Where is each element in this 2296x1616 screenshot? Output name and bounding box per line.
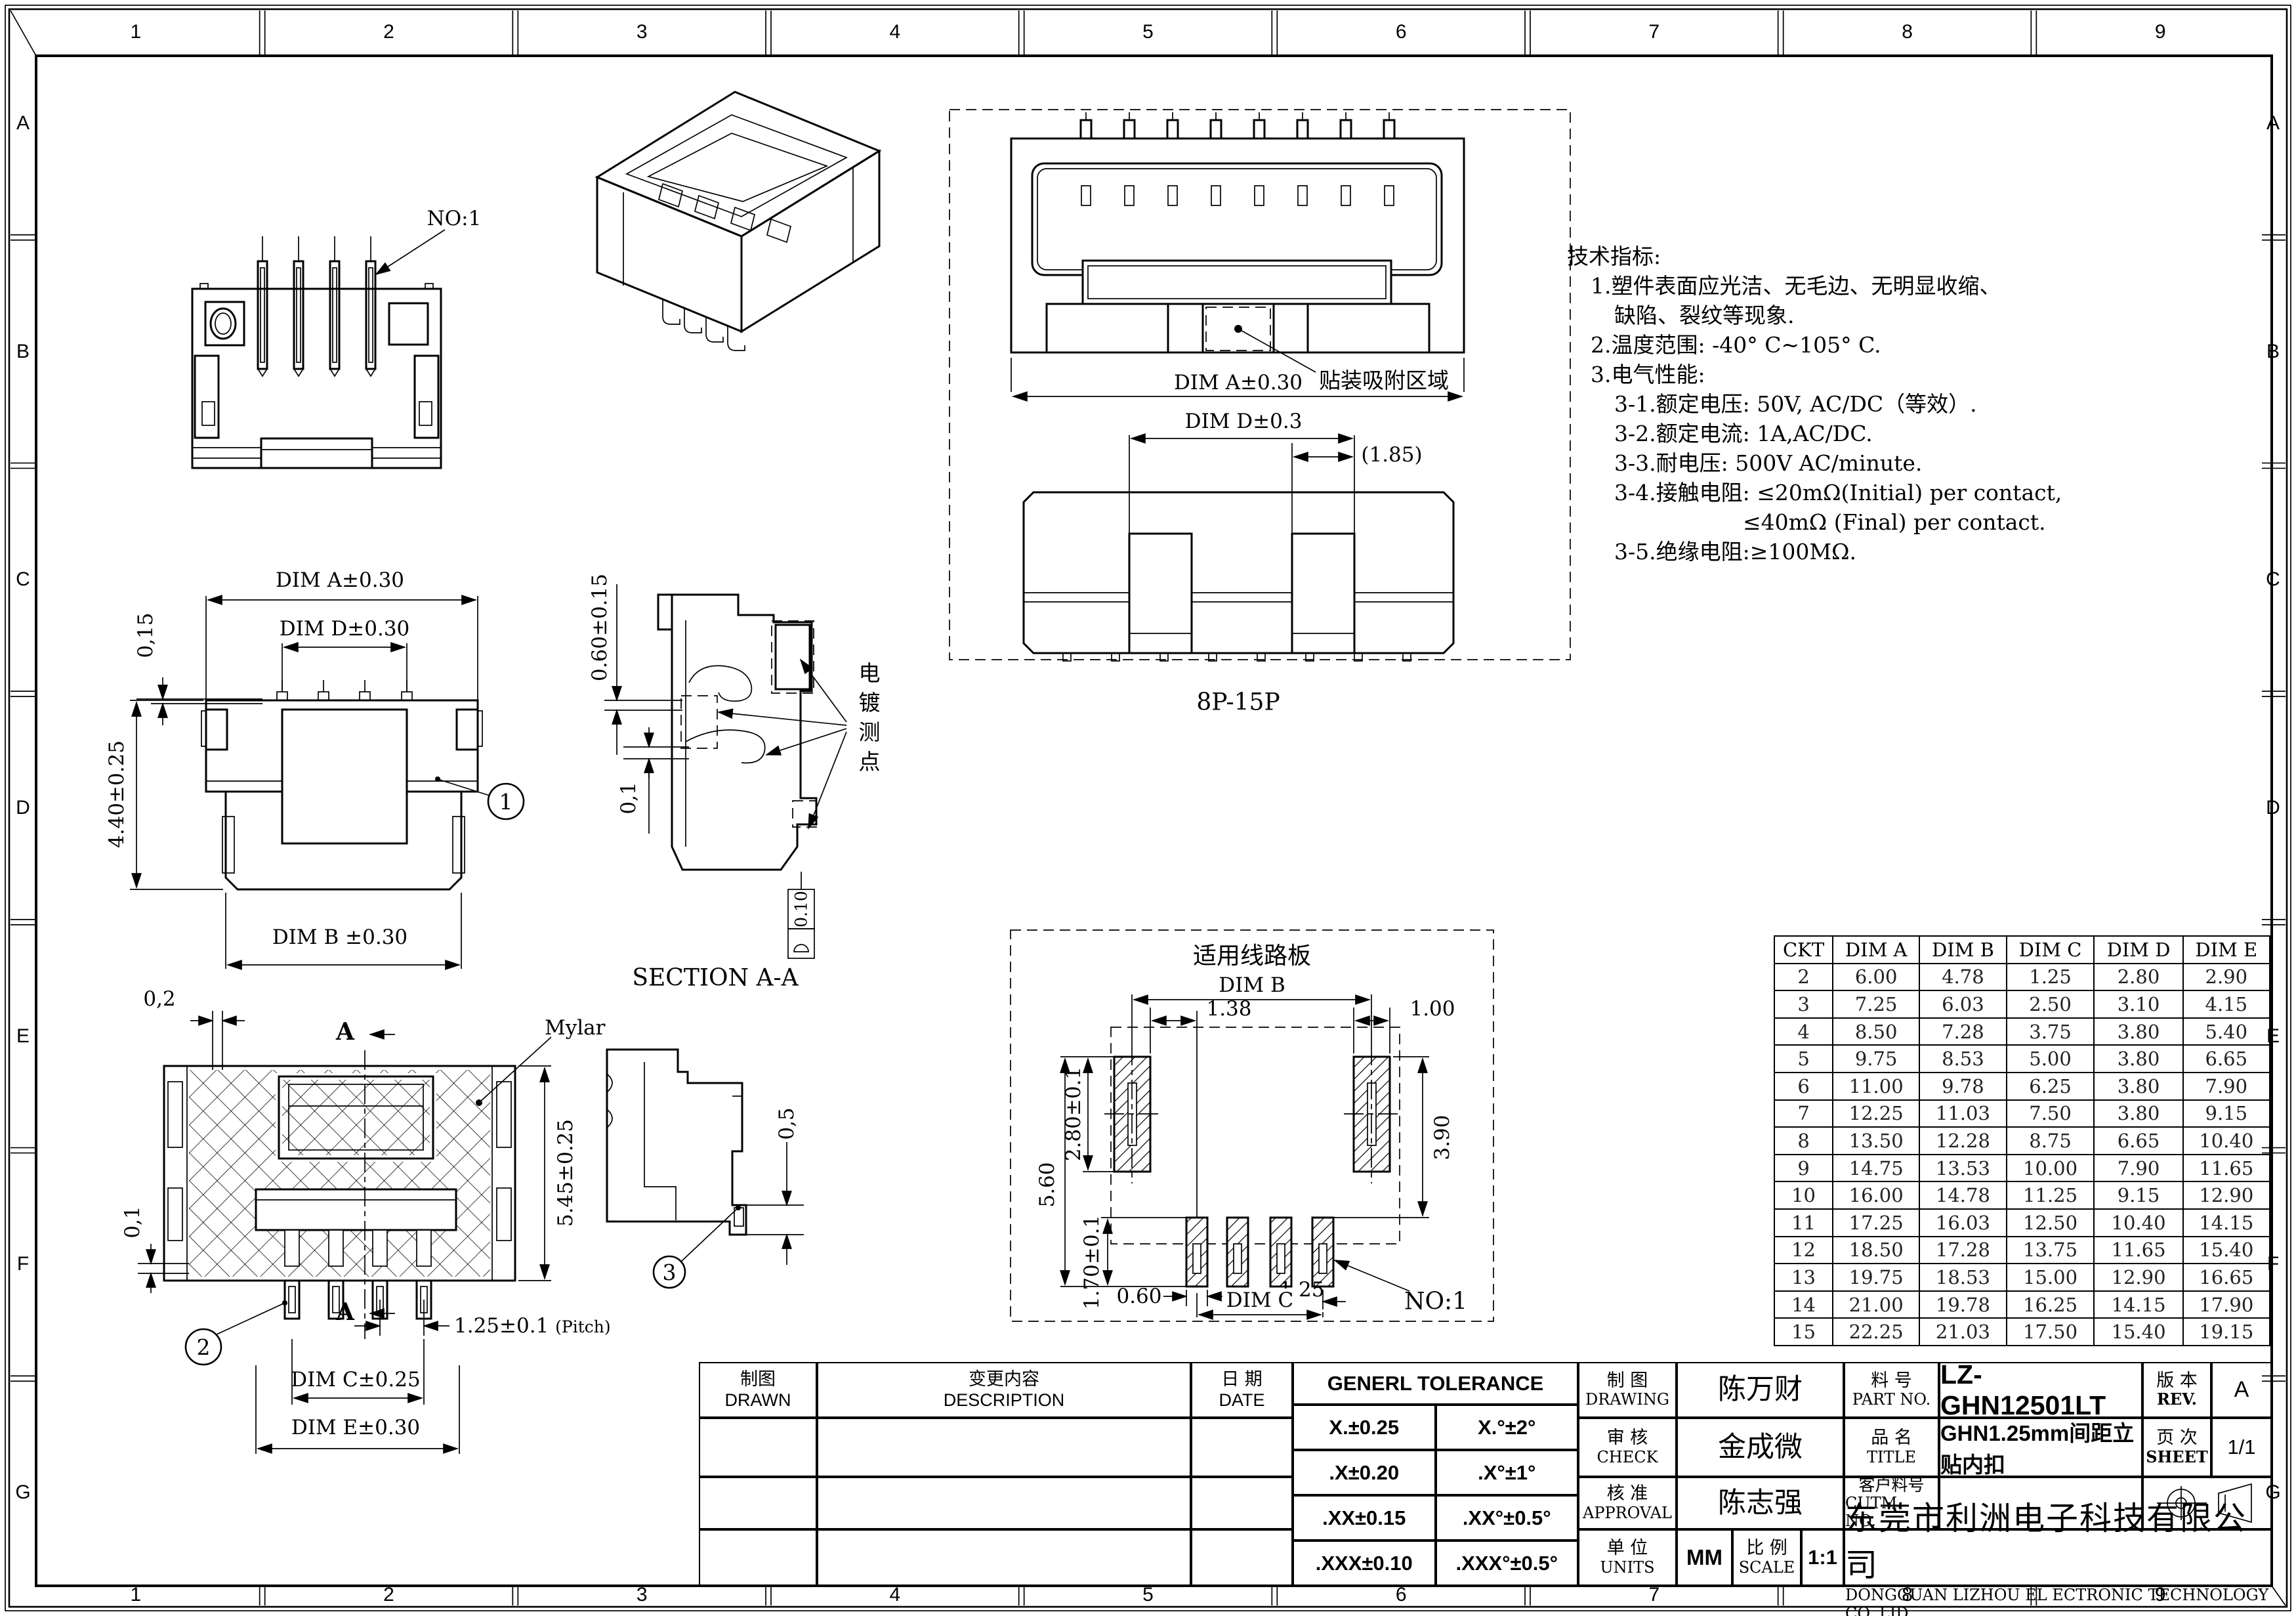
technical-note-line: 2.温度范围: -40° C~105° C.	[1567, 330, 2112, 360]
drawn-header-en: DRAWN	[725, 1390, 791, 1410]
table-cell: 12.50	[2007, 1209, 2095, 1237]
table-cell: 14.15	[2183, 1209, 2270, 1237]
drawing-label: 制 图 DRAWING	[1578, 1362, 1677, 1418]
pcb-dim-b-label: DIM B	[1219, 973, 1285, 997]
table-cell: 4.78	[1919, 964, 2007, 991]
table-cell: 13.75	[2007, 1237, 2095, 1264]
table-cell: 10	[1774, 1181, 1833, 1209]
table-cell: 12.90	[2183, 1181, 2270, 1209]
description-header: 变更内容 DESCRIPTION	[817, 1362, 1191, 1418]
table-cell: 7.25	[1833, 990, 1919, 1018]
dim-d-label: DIM D±0.30	[280, 617, 410, 641]
table-cell: 19.15	[2183, 1318, 2270, 1346]
scale-value: 1:1	[1801, 1529, 1844, 1586]
zone-letter: C	[10, 465, 35, 694]
ckt-dimension-table: CKTDIM ADIM BDIM CDIM DDIM E 26.004.781.…	[1774, 935, 2270, 1346]
product-title-label-en: TITLE	[1867, 1449, 1916, 1466]
table-header-cell: DIM A	[1833, 936, 1919, 964]
section-aa-view: 0.60±0.15 0,1 电镀测点 0.10 SECTION A-A	[584, 558, 971, 994]
product-title-label-zh: 品 名	[1871, 1428, 1912, 1448]
table-cell: 16.03	[1919, 1209, 2007, 1237]
units-label-zh: 单 位	[1607, 1539, 1648, 1558]
tolerance-cell: .XX°±0.5°	[1436, 1495, 1579, 1541]
revision-row-cell	[817, 1418, 1191, 1477]
zone-number: 6	[1274, 11, 1528, 54]
tolerance-row: .X±0.20.X°±1°	[1293, 1450, 1578, 1495]
table-cell: 13.50	[1833, 1127, 1919, 1155]
drawn-header-zh: 制图	[740, 1370, 776, 1390]
table-row: 37.256.032.503.104.15	[1774, 990, 2270, 1018]
table-cell: 14.15	[2094, 1291, 2182, 1319]
table-cell: 11.00	[1833, 1073, 1919, 1100]
mylar-dim-e-label: DIM E±0.30	[291, 1416, 420, 1439]
table-cell: 6.03	[1919, 990, 2007, 1018]
check-label: 审 核 CHECK	[1578, 1418, 1677, 1477]
zone-number: 2	[262, 1583, 516, 1607]
table-cell: 11.03	[1919, 1100, 2007, 1128]
zone-letter: D	[10, 694, 35, 922]
revision-row-cell	[1191, 1477, 1293, 1529]
product-title-value: GHN1.25mm间距立贴内扣	[1939, 1418, 2142, 1477]
zone-letter: C	[2261, 465, 2286, 694]
pcb-dim-060-label: 0.60	[1116, 1285, 1161, 1308]
date-header: 日 期 DATE	[1191, 1362, 1293, 1418]
table-header-cell: DIM B	[1919, 936, 2007, 964]
zone-number: 5	[1022, 11, 1275, 54]
approval-label-en: APPROVAL	[1583, 1504, 1672, 1522]
table-cell: 11.25	[2007, 1181, 2095, 1209]
technical-note-line: 3-5.绝缘电阻:≥100MΩ.	[1567, 537, 2112, 566]
approval-label-zh: 核 准	[1607, 1484, 1648, 1504]
table-cell: 3.80	[2094, 1073, 2182, 1100]
technical-note-line: 3.电气性能:	[1567, 360, 2112, 389]
table-cell: 11	[1774, 1209, 1833, 1237]
scale-label-zh: 比 例	[1746, 1539, 1787, 1558]
table-cell: 5.40	[2183, 1018, 2270, 1046]
table-cell: 3	[1774, 990, 1833, 1018]
front-view-drawing	[151, 194, 564, 509]
table-cell: 12.28	[1919, 1127, 2007, 1155]
product-title-label: 品 名 TITLE	[1844, 1418, 1939, 1477]
section-dim-060-label: 0.60±0.15	[588, 574, 612, 681]
smt-dim-a-label: DIM A±0.30	[1174, 371, 1303, 394]
tolerance-cell: .XXX°±0.5°	[1436, 1541, 1579, 1586]
table-cell: 3.80	[2094, 1100, 2182, 1128]
ckt-table-body: 26.004.781.252.802.9037.256.032.503.104.…	[1774, 964, 2270, 1346]
section-aa-drawing	[584, 558, 971, 994]
units-value: MM	[1677, 1529, 1732, 1586]
zone-letter: A	[2261, 9, 2286, 238]
table-row: 48.507.283.753.805.40	[1774, 1018, 2270, 1046]
zone-letter: F	[10, 1151, 35, 1379]
drawing-signature: 陈万财	[1677, 1362, 1844, 1418]
table-cell: 16.25	[2007, 1291, 2095, 1319]
table-cell: 22.25	[1833, 1318, 1919, 1346]
pitch-value: 1.25±0.1	[454, 1314, 549, 1338]
table-cell: 8	[1774, 1127, 1833, 1155]
zone-number: 7	[1528, 1583, 1781, 1607]
pcb-dim-390-label: 3.90	[1430, 1115, 1454, 1160]
tolerance-cell: X.°±2°	[1436, 1405, 1579, 1450]
table-cell: 17.50	[2007, 1318, 2095, 1346]
zone-number: 7	[1528, 11, 1781, 54]
dim-015-label: 0,15	[134, 612, 157, 658]
scale-label: 比 例 SCALE	[1732, 1529, 1801, 1586]
zone-letter: B	[10, 238, 35, 466]
technical-note-line: 3-4.接触电阻: ≤20mΩ(Initial) per contact,	[1567, 478, 2112, 507]
rev-label: 版 本 REV.	[2142, 1362, 2211, 1418]
rev-label-en: REV.	[2157, 1391, 2197, 1409]
table-cell: 9.78	[1919, 1073, 2007, 1100]
table-row: 1319.7518.5315.0012.9016.65	[1774, 1264, 2270, 1291]
technical-notes: 技术指标: 1.塑件表面应光洁、无毛边、无明显收缩、缺陷、裂纹等现象.2.温度范…	[1567, 242, 2112, 566]
table-row: 26.004.781.252.802.90	[1774, 964, 2270, 991]
table-cell: 4	[1774, 1018, 1833, 1046]
sheet-label-en: SHEET	[2146, 1449, 2207, 1466]
table-cell: 5.00	[2007, 1045, 2095, 1073]
table-cell: 9.75	[1833, 1045, 1919, 1073]
table-cell: 4.15	[2183, 990, 2270, 1018]
pcb-pin1-callout: NO:1	[1404, 1288, 1467, 1315]
table-header-row: CKTDIM ADIM BDIM CDIM DDIM E	[1774, 936, 2270, 964]
table-cell: 10.40	[2094, 1209, 2182, 1237]
dimensioned-front-view: 1 DIM A±0.30 DIM D±0.30 0,15 4.40±0.25 D…	[98, 551, 571, 988]
table-row: 712.2511.037.503.809.15	[1774, 1100, 2270, 1128]
table-cell: 6.00	[1833, 964, 1919, 991]
dim-440-label: 4.40±0.25	[105, 740, 129, 848]
table-cell: 15.00	[2007, 1264, 2095, 1291]
balloon-2-icon: 2	[197, 1334, 211, 1360]
table-cell: 15.40	[2094, 1318, 2182, 1346]
balloon-1-icon: 1	[499, 789, 513, 815]
table-cell: 16.65	[2183, 1264, 2270, 1291]
table-cell: 6	[1774, 1073, 1833, 1100]
table-cell: 2.90	[2183, 964, 2270, 991]
table-cell: 8.50	[1833, 1018, 1919, 1046]
revision-row-cell	[699, 1477, 817, 1529]
pcb-dim-c-label: DIM C	[1222, 1288, 1297, 1312]
smt-view-title: 8P-15P	[1196, 689, 1280, 716]
table-cell: 7.28	[1919, 1018, 2007, 1046]
front-view: NO:1	[151, 194, 564, 509]
tolerance-cell: X.±0.25	[1293, 1405, 1436, 1450]
table-header-cell: DIM C	[2007, 936, 2095, 964]
table-cell: 9.15	[2094, 1181, 2182, 1209]
smt-variant-view: DIM A±0.30 贴装吸附区域 DIM D±0.3 (1.85) 8P-15…	[948, 108, 1572, 738]
grid-ruler-top: 123456789	[9, 11, 2287, 54]
company-cell: 东莞市利洲电子科技有限公司 DONGGUAN LIZHOU EL ECTRONI…	[1844, 1529, 2272, 1586]
part-no-label-en: PART NO.	[1852, 1391, 1931, 1409]
technical-note-line: ≤40mΩ (Final) per contact.	[1567, 507, 2112, 537]
table-cell: 2	[1774, 964, 1833, 991]
table-row: 59.758.535.003.806.65	[1774, 1045, 2270, 1073]
technical-note-line: 3-1.额定电压: 50V, AC/DC（等效）.	[1567, 389, 2112, 419]
table-cell: 13.53	[1919, 1155, 2007, 1182]
table-cell: 6.25	[2007, 1073, 2095, 1100]
table-cell: 17.28	[1919, 1237, 2007, 1264]
suction-area-label: 贴装吸附区域	[1319, 363, 1449, 394]
rev-value: A	[2211, 1362, 2272, 1418]
pcb-view-title: 适用线路板	[1193, 937, 1311, 971]
isometric-view	[538, 36, 906, 361]
grid-ruler-left: ABCDEFG	[10, 9, 35, 1607]
technical-note-line: 3-3.耐电压: 500V AC/minute.	[1567, 448, 2112, 478]
table-row: 914.7513.5310.007.9011.65	[1774, 1155, 2270, 1182]
side-dim-05-label: 0,5	[775, 1107, 799, 1139]
mylar-dim-c-label: DIM C±0.25	[291, 1368, 420, 1392]
table-cell: 2.80	[2094, 964, 2182, 991]
table-cell: 7.50	[2007, 1100, 2095, 1128]
pcb-dim-560-label: 5.60	[1035, 1162, 1059, 1207]
zone-number: 8	[1781, 11, 2034, 54]
zone-letter: B	[2261, 238, 2286, 466]
zone-letter: E	[10, 922, 35, 1151]
check-label-en: CHECK	[1597, 1449, 1658, 1466]
tolerance-cell: .X±0.20	[1293, 1450, 1436, 1495]
table-cell: 12.25	[1833, 1100, 1919, 1128]
table-cell: 9.15	[2183, 1100, 2270, 1128]
scale-label-en: SCALE	[1739, 1559, 1795, 1577]
table-cell: 7	[1774, 1100, 1833, 1128]
table-cell: 17.25	[1833, 1209, 1919, 1237]
side-view: 3 0,5	[577, 1011, 906, 1349]
table-cell: 6.65	[2094, 1127, 2182, 1155]
tolerance-row: .XXX±0.10.XXX°±0.5°	[1293, 1541, 1578, 1586]
zone-number: 1	[9, 11, 262, 54]
table-row: 1421.0019.7816.2514.1517.90	[1774, 1291, 2270, 1319]
section-arrow-a-bottom: A	[336, 1298, 354, 1326]
zone-number: 6	[1274, 1583, 1528, 1607]
table-cell: 15	[1774, 1318, 1833, 1346]
revision-row-cell	[699, 1418, 817, 1477]
table-row: 813.5012.288.756.6510.40	[1774, 1127, 2270, 1155]
tolerance-title: GENERL TOLERANCE	[1293, 1362, 1578, 1405]
sheet-label: 页 次 SHEET	[2142, 1418, 2211, 1477]
table-cell: 18.53	[1919, 1264, 2007, 1291]
plating-test-points-label: 电镀测点	[852, 662, 883, 780]
rev-label-zh: 版 本	[2156, 1371, 2198, 1391]
pin1-callout: NO:1	[427, 207, 482, 230]
table-cell: 14.75	[1833, 1155, 1919, 1182]
sheet-label-zh: 页 次	[2156, 1428, 2198, 1448]
table-cell: 13	[1774, 1264, 1833, 1291]
table-cell: 7.90	[2183, 1073, 2270, 1100]
revision-row-cell	[817, 1529, 1191, 1586]
zone-number: 9	[2034, 11, 2287, 54]
zone-letter: A	[10, 9, 35, 238]
tolerance-row: X.±0.25X.°±2°	[1293, 1405, 1578, 1450]
table-header-cell: DIM D	[2094, 936, 2182, 964]
check-signature: 金成微	[1677, 1418, 1844, 1477]
revision-row-cell	[817, 1477, 1191, 1529]
revision-row-cell	[699, 1529, 817, 1586]
section-arrow-a-top: A	[336, 1018, 354, 1046]
pcb-dim-280-label: 2.80±0.1	[1062, 1067, 1085, 1161]
revision-row-cell	[1191, 1418, 1293, 1477]
table-cell: 10.00	[2007, 1155, 2095, 1182]
table-cell: 19.78	[1919, 1291, 2007, 1319]
table-header-cell: CKT	[1774, 936, 1833, 964]
table-cell: 3.80	[2094, 1018, 2182, 1046]
table-cell: 2.50	[2007, 990, 2095, 1018]
drawn-header: 制图 DRAWN	[699, 1362, 817, 1418]
isometric-view-drawing	[538, 36, 906, 361]
mylar-dim-545-label: 5.45±0.25	[554, 1119, 577, 1227]
smt-dim-d-label: DIM D±0.3	[1185, 410, 1303, 433]
technical-note-line: 3-2.额定电流: 1A,AC/DC.	[1567, 419, 2112, 448]
table-cell: 10.40	[2183, 1127, 2270, 1155]
company-name-en: DONGGUAN LIZHOU EL ECTRONIC TECHNOLOGY C…	[1845, 1586, 2270, 1616]
pcb-layout-view: 适用线路板 DIM B 1.38 1.00 2.80±0.1 5.60 3.90…	[1009, 929, 1495, 1323]
part-no-value: LZ-GHN12501LT	[1939, 1362, 2142, 1418]
table-cell: 3.10	[2094, 990, 2182, 1018]
table-cell: 19.75	[1833, 1264, 1919, 1291]
table-cell: 11.65	[2094, 1237, 2182, 1264]
drawing-sheet: 123456789 123456789 ABCDEFG ABCDEFG	[0, 0, 2296, 1616]
mylar-bottom-view: 2 0,2 A A Mylar 5.45±0.25 0,1 1.25±0.1 (…	[92, 971, 597, 1460]
table-cell: 15.40	[2183, 1237, 2270, 1264]
part-no-label-zh: 料 号	[1871, 1371, 1912, 1391]
pcb-dim-100-label: 1.00	[1409, 997, 1455, 1021]
zone-number: 4	[768, 1583, 1022, 1607]
table-cell: 18.50	[1833, 1237, 1919, 1264]
zone-number: 1	[9, 1583, 262, 1607]
table-cell: 1.25	[2007, 964, 2095, 991]
mylar-dim-02-label: 0,2	[143, 987, 175, 1011]
tolerance-table: X.±0.25X.°±2°.X±0.20.X°±1°.XX±0.15.XX°±0…	[1293, 1405, 1578, 1586]
table-row: 1522.2521.0317.5015.4019.15	[1774, 1318, 2270, 1346]
balloon-3-icon: 3	[663, 1260, 677, 1285]
dim-a-label: DIM A±0.30	[276, 568, 404, 592]
technical-notes-title: 技术指标:	[1567, 242, 2112, 271]
table-row: 611.009.786.253.807.90	[1774, 1073, 2270, 1100]
tolerance-cell: .XXX±0.10	[1293, 1541, 1436, 1586]
technical-note-line: 1.塑件表面应光洁、无毛边、无明显收缩、	[1567, 271, 2112, 301]
tolerance-cell: .XX±0.15	[1293, 1495, 1436, 1541]
date-header-en: DATE	[1219, 1390, 1264, 1410]
section-dim-01-label: 0,1	[617, 782, 640, 814]
table-row: 1117.2516.0312.5010.4014.15	[1774, 1209, 2270, 1237]
sheet-value: 1/1	[2211, 1418, 2272, 1477]
part-no-label: 料 号 PART NO.	[1844, 1362, 1939, 1418]
table-cell: 21.03	[1919, 1318, 2007, 1346]
technical-note-line: 缺陷、裂纹等现象.	[1567, 301, 2112, 330]
table-cell: 3.80	[2094, 1045, 2182, 1073]
mylar-dim-01-label: 0,1	[121, 1206, 144, 1238]
ckt-table-header: CKTDIM ADIM BDIM CDIM DDIM E	[1774, 936, 2270, 964]
dim-b-label: DIM B ±0.30	[272, 925, 407, 949]
zone-number: 5	[1022, 1583, 1275, 1607]
tolerance-cell: .X°±1°	[1436, 1450, 1579, 1495]
table-cell: 3.75	[2007, 1018, 2095, 1046]
table-cell: 8.75	[2007, 1127, 2095, 1155]
table-cell: 6.65	[2183, 1045, 2270, 1073]
table-cell: 14	[1774, 1291, 1833, 1319]
description-header-en: DESCRIPTION	[944, 1390, 1065, 1410]
tolerance-row: .XX±0.15.XX°±0.5°	[1293, 1495, 1578, 1541]
smt-1_85-label: (1.85)	[1361, 443, 1422, 467]
table-cell: 11.65	[2183, 1155, 2270, 1182]
table-cell: 8.53	[1919, 1045, 2007, 1073]
description-header-zh: 变更内容	[969, 1370, 1039, 1390]
zone-letter: D	[2261, 694, 2286, 922]
title-block: 制图 DRAWN 变更内容 DESCRIPTION 日 期 DATE GENER…	[699, 1362, 2272, 1586]
section-aa-title: SECTION A-A	[632, 965, 798, 992]
table-cell: 12.90	[2094, 1264, 2182, 1291]
customer-no-label-zh: 客户料号	[1858, 1476, 1924, 1495]
approval-signature: 陈志强	[1677, 1477, 1844, 1529]
side-view-drawing: 3	[577, 1011, 906, 1349]
table-cell: 5	[1774, 1045, 1833, 1073]
units-label: 单 位 UNITS	[1578, 1529, 1677, 1586]
check-label-zh: 审 核	[1607, 1428, 1648, 1448]
date-header-zh: 日 期	[1221, 1370, 1263, 1390]
company-name-zh: 东莞市利洲电子科技有限公司	[1845, 1493, 2270, 1586]
table-cell: 21.00	[1833, 1291, 1919, 1319]
approval-label: 核 准 APPROVAL	[1578, 1477, 1677, 1529]
table-cell: 16.00	[1833, 1181, 1919, 1209]
flatness-tolerance-value: 0.10	[792, 891, 811, 927]
zone-number: 2	[262, 11, 516, 54]
table-cell: 14.78	[1919, 1181, 2007, 1209]
table-cell: 17.90	[2183, 1291, 2270, 1319]
drawing-label-en: DRAWING	[1585, 1391, 1669, 1409]
table-row: 1016.0014.7811.259.1512.90	[1774, 1181, 2270, 1209]
table-cell: 12	[1774, 1237, 1833, 1264]
revision-row-cell	[1191, 1529, 1293, 1586]
zone-letter: G	[10, 1378, 35, 1607]
units-label-en: UNITS	[1600, 1559, 1654, 1577]
drawing-label-zh: 制 图	[1607, 1371, 1648, 1391]
table-cell: 7.90	[2094, 1155, 2182, 1182]
table-cell: 9	[1774, 1155, 1833, 1182]
pcb-dim-170-label: 1.70±0.1	[1080, 1215, 1104, 1309]
table-header-cell: DIM E	[2183, 936, 2270, 964]
zone-number: 3	[515, 1583, 768, 1607]
table-row: 1218.5017.2813.7511.6515.40	[1774, 1237, 2270, 1264]
pcb-dim-138-label: 1.38	[1206, 997, 1251, 1021]
